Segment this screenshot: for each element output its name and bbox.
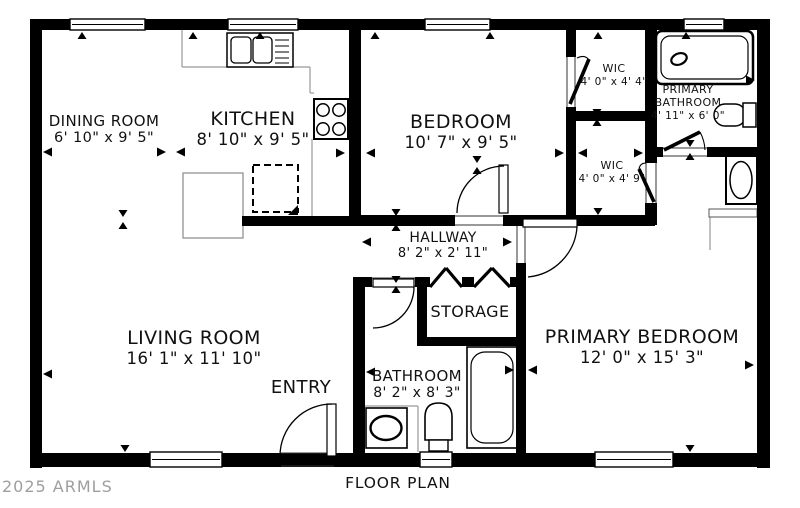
- dimension-arrow-icon: [686, 140, 695, 147]
- door-leaf: [327, 404, 336, 456]
- room-label-hallway: HALLWAY8' 2" x 2' 11": [398, 230, 488, 261]
- room-name: HALLWAY: [398, 230, 488, 246]
- bathroom-toilet-icon: [425, 403, 452, 440]
- room-dimensions: 4' 0" x 4' 9": [579, 173, 646, 185]
- dimension-arrow-icon: [157, 148, 166, 157]
- dimension-arrow-icon: [634, 149, 643, 158]
- room-label-storage: STORAGE: [431, 303, 510, 322]
- door-leaf-diagonal: [664, 132, 700, 150]
- dimension-arrow-icon: [486, 32, 495, 39]
- wall: [566, 111, 657, 121]
- room-name: STORAGE: [431, 303, 510, 322]
- wall: [462, 277, 474, 287]
- wall: [353, 277, 365, 467]
- kitchen-island-icon: [183, 173, 243, 238]
- room-label-primary-bedroom: PRIMARY BEDROOM12' 0" x 15' 3": [545, 326, 739, 367]
- door-swing-arc: [528, 227, 577, 277]
- room-dimensions: 12' 0" x 15' 3": [545, 348, 739, 367]
- room-dimensions: 8' 2" x 8' 3": [372, 385, 462, 401]
- door-swing-arc: [280, 404, 332, 456]
- room-dimensions: 8' 10" x 9' 5": [196, 130, 309, 149]
- dimension-arrow-icon: [119, 222, 128, 229]
- room-name: ENTRY: [271, 378, 331, 399]
- bifold-door: [474, 268, 492, 287]
- armls-watermark: 2025 ARMLS: [2, 477, 113, 496]
- dimension-arrow-icon: [473, 156, 482, 163]
- room-dimensions: 6' 10" x 9' 5": [49, 130, 160, 147]
- door-leaf: [499, 165, 508, 213]
- room-dimensions: 4' 11" x 6' 0": [651, 110, 725, 122]
- shower-icon: [656, 31, 753, 84]
- room-dimensions: 8' 2" x 2' 11": [398, 246, 488, 261]
- room-name: PRIMARY BEDROOM: [545, 326, 739, 348]
- room-name: KITCHEN: [196, 108, 309, 130]
- primary-toilet-icon: [743, 103, 756, 127]
- room-label-kitchen: KITCHEN8' 10" x 9' 5": [196, 108, 309, 149]
- dimension-arrow-icon: [189, 32, 198, 39]
- dimension-arrow-icon: [503, 238, 512, 247]
- dimension-arrow-icon: [594, 208, 603, 215]
- wall: [645, 203, 657, 225]
- wall: [516, 263, 526, 287]
- dimension-arrow-icon: [336, 149, 345, 158]
- room-dimensions: 4' 0" x 4' 4": [581, 76, 648, 88]
- wall: [242, 216, 361, 226]
- wall: [566, 30, 576, 57]
- bifold-door: [492, 268, 510, 287]
- bathroom-toilet-icon: [429, 440, 448, 451]
- wall: [415, 277, 430, 287]
- dimension-arrow-icon: [578, 149, 587, 158]
- dimension-arrow-icon: [121, 445, 130, 452]
- dimension-arrow-icon: [392, 209, 401, 216]
- wall: [361, 215, 455, 226]
- room-name: LIVING ROOM: [127, 327, 262, 349]
- room-label-wic-top: WIC4' 0" x 4' 4": [581, 63, 648, 88]
- bathtub-icon: [467, 347, 517, 448]
- bifold-door: [430, 268, 446, 287]
- room-dimensions: 10' 7" x 9' 5": [404, 133, 517, 152]
- washer-icon: [709, 209, 757, 217]
- wall: [645, 147, 663, 157]
- dimension-arrow-icon: [686, 445, 695, 452]
- wall: [516, 346, 526, 453]
- wall: [707, 147, 770, 157]
- dimension-arrow-icon: [745, 361, 754, 370]
- door-leaf: [373, 279, 414, 287]
- dimension-arrow-icon: [473, 167, 482, 174]
- bifold-door: [446, 268, 462, 287]
- room-name: PRIMARY: [651, 84, 725, 97]
- door-leaf: [523, 219, 577, 227]
- dimension-arrow-icon: [176, 148, 185, 157]
- room-name: BEDROOM: [404, 111, 517, 133]
- door-swing-arc: [373, 287, 414, 328]
- dishwasher-icon: [253, 165, 298, 212]
- dimension-arrow-icon: [555, 149, 564, 158]
- floor-plan-caption: FLOOR PLAN: [345, 474, 451, 492]
- dimension-arrow-icon: [594, 32, 603, 39]
- door-swing-arc-small: [700, 132, 705, 150]
- dimension-arrow-icon: [119, 210, 128, 217]
- wall: [757, 19, 770, 468]
- room-label-wic-bottom: WIC4' 0" x 4' 9": [579, 160, 646, 185]
- room-name: DINING ROOM: [49, 113, 160, 130]
- room-label-primary-bathroom: PRIMARYBATHROOM4' 11" x 6' 0": [651, 84, 725, 122]
- room-name: WIC: [581, 63, 648, 76]
- dimension-arrow-icon: [78, 32, 87, 39]
- room-label-dining-room: DINING ROOM6' 10" x 9' 5": [49, 113, 160, 147]
- room-label-entry: ENTRY: [271, 378, 331, 399]
- room-label-living-room: LIVING ROOM16' 1" x 11' 10": [127, 327, 262, 368]
- wall: [516, 287, 526, 337]
- dishwasher-icon: [288, 205, 298, 215]
- dimension-arrow-icon: [43, 370, 52, 379]
- wall: [566, 107, 576, 215]
- dimension-arrow-icon: [366, 149, 375, 158]
- wall: [30, 19, 42, 468]
- dimension-arrow-icon: [371, 32, 380, 39]
- dimension-arrow-icon: [362, 238, 371, 247]
- floor-plan-page: DINING ROOM6' 10" x 9' 5"KITCHEN8' 10" x…: [0, 0, 800, 508]
- dimension-arrow-icon: [43, 148, 52, 157]
- wall: [349, 30, 361, 226]
- room-dimensions: 16' 1" x 11' 10": [127, 349, 262, 368]
- room-name: BATHROOM: [372, 368, 462, 385]
- room-name: WIC: [579, 160, 646, 173]
- dimension-arrow-icon: [528, 366, 537, 375]
- room-dimensions: BATHROOM: [651, 97, 725, 110]
- room-label-bedroom: BEDROOM10' 7" x 9' 5": [404, 111, 517, 152]
- room-label-bathroom: BATHROOM8' 2" x 8' 3": [372, 368, 462, 402]
- wall: [417, 337, 526, 346]
